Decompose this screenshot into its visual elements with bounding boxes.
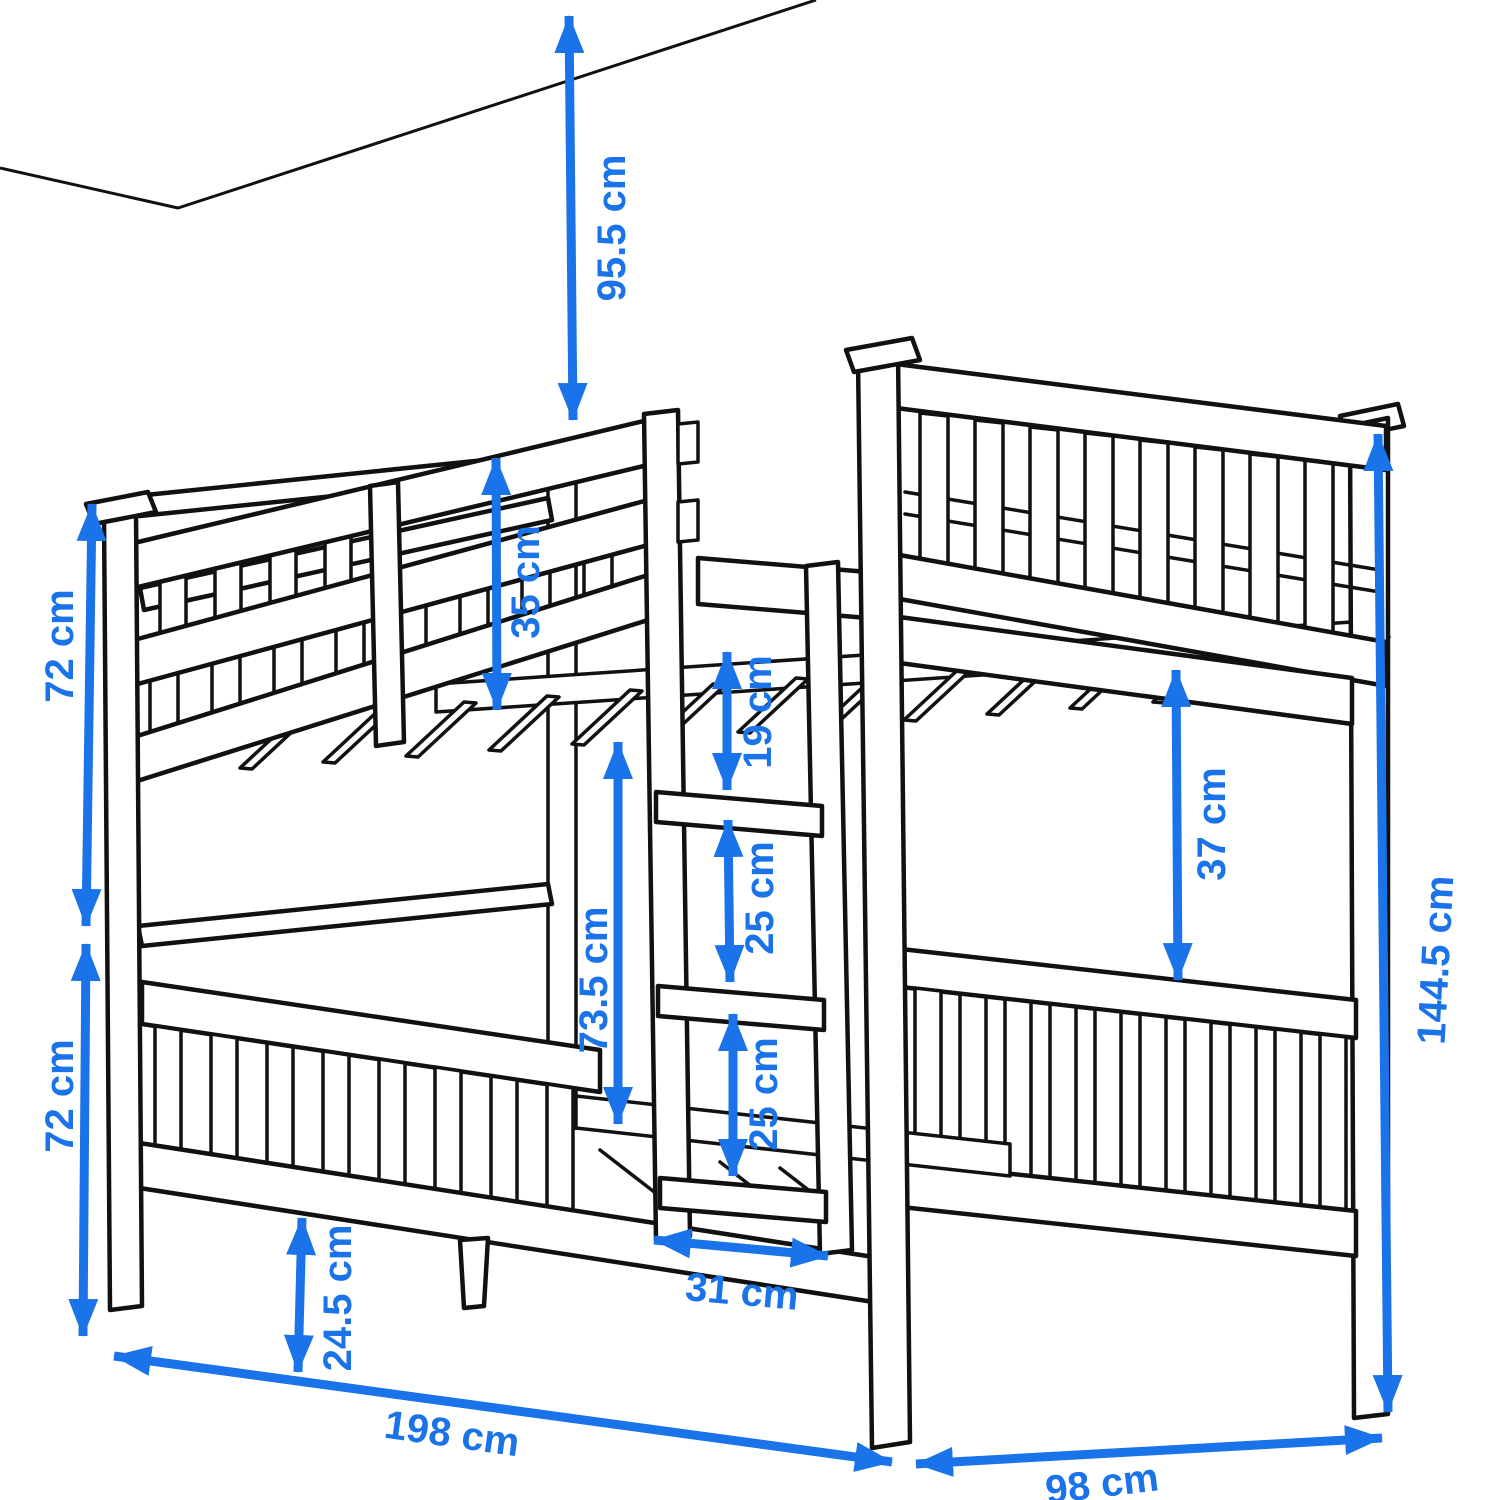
slat <box>155 1026 181 1149</box>
slat <box>1140 440 1168 605</box>
slat <box>211 1034 237 1158</box>
dimension-arrow <box>298 1218 302 1372</box>
dimension-label: 98 cm <box>1043 1455 1161 1500</box>
ceiling-corner-lines <box>0 0 816 208</box>
dim-lower-bunk-side: 72 cm <box>38 944 86 1336</box>
dim-leg-height: 24.5 cm <box>298 1218 360 1372</box>
dim-upper-bunk-side: 72 cm <box>38 504 92 926</box>
dimension-arrow <box>569 16 573 420</box>
slat <box>920 413 948 565</box>
ceiling-line <box>0 0 816 208</box>
dim-total-height: 144.5 cm <box>1378 434 1462 1412</box>
bunk-bed-dimension-diagram: 95.5 cm 35 cm 72 cm 72 cm 24.5 cm 198 cm… <box>0 0 1500 1500</box>
slat <box>1085 433 1113 595</box>
slat <box>1320 1034 1346 1212</box>
dimension-label: 72 cm <box>38 1039 82 1152</box>
slat <box>1250 454 1278 625</box>
slat <box>160 576 186 633</box>
slat <box>267 1043 293 1167</box>
dim-rung-gap-2: 25 cm <box>733 1014 786 1176</box>
slat <box>1195 447 1223 615</box>
dimension-arrow <box>496 458 497 710</box>
dimension-label: 37 cm <box>1190 767 1234 880</box>
dimension-arrow <box>1176 670 1178 980</box>
dim-clearance-right: 37 cm <box>1176 670 1234 980</box>
diagram-canvas: 95.5 cm 35 cm 72 cm 72 cm 24.5 cm 198 cm… <box>0 0 1500 1500</box>
middle-leg <box>460 1238 488 1308</box>
slat <box>1030 427 1058 585</box>
rail-stub <box>678 422 698 464</box>
dimension-label: 144.5 cm <box>1410 874 1463 1045</box>
dimension-label: 72 cm <box>38 589 82 702</box>
slat <box>547 1084 573 1210</box>
guard-mid-post <box>370 482 404 746</box>
dimension-label: 25 cm <box>742 1037 786 1150</box>
slat <box>1275 1029 1301 1207</box>
slat <box>1230 1024 1256 1202</box>
slat <box>491 1076 517 1202</box>
slat <box>1095 1009 1121 1188</box>
slat <box>1050 1004 1076 1183</box>
dimension-label: 95.5 cm <box>590 155 634 302</box>
dimension-label: 24.5 cm <box>316 1225 360 1372</box>
left-post-cap <box>86 492 156 524</box>
rail-stub <box>678 500 698 542</box>
dimension-arrow <box>83 944 86 1336</box>
slat <box>435 1067 461 1193</box>
lower-deck-back-rail <box>576 1096 1010 1176</box>
upper-front-rail-right-segment <box>698 558 868 618</box>
slat <box>1140 1014 1166 1193</box>
dim-length: 198 cm <box>114 1356 892 1465</box>
lower-left-end-rail <box>138 884 552 946</box>
dimension-label: 19 cm <box>736 655 780 768</box>
slat <box>975 420 1003 575</box>
dimension-label: 31 cm <box>684 1265 801 1319</box>
dim-width: 98 cm <box>916 1438 1382 1500</box>
dimension-label: 73.5 cm <box>572 907 616 1054</box>
left-front-post <box>104 512 142 1310</box>
slat <box>1305 460 1333 635</box>
dimension-label: 25 cm <box>738 841 782 954</box>
dimension-label: 35 cm <box>504 525 548 638</box>
dim-rung-gap-1: 25 cm <box>728 820 782 982</box>
slat <box>379 1059 405 1184</box>
dimension-arrow <box>86 504 92 926</box>
slat <box>1185 1019 1211 1198</box>
dimension-arrow <box>728 820 730 982</box>
slat <box>323 1051 349 1176</box>
